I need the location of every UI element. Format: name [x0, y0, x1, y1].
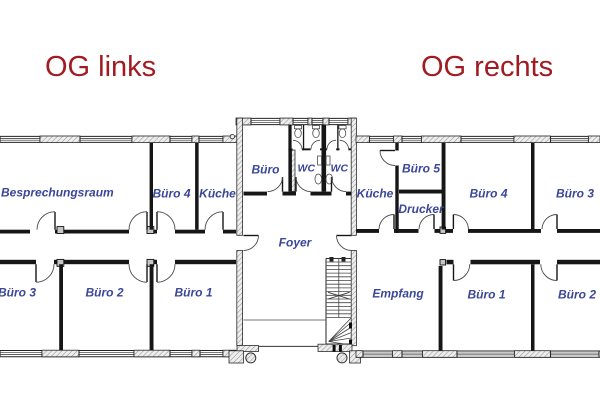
svg-text:Büro 2: Büro 2: [85, 286, 123, 300]
svg-text:Büro 1: Büro 1: [467, 288, 505, 302]
svg-text:Büro 5: Büro 5: [402, 162, 440, 176]
svg-text:Büro 1: Büro 1: [174, 286, 212, 300]
svg-text:Drucker: Drucker: [398, 202, 445, 216]
svg-text:Büro 4: Büro 4: [469, 187, 507, 201]
svg-text:OG links: OG links: [45, 51, 156, 83]
svg-text:OG rechts: OG rechts: [421, 51, 553, 83]
svg-text:Besprechungsraum: Besprechungsraum: [1, 186, 114, 200]
svg-text:Küche: Küche: [357, 187, 394, 201]
svg-text:Büro 4: Büro 4: [152, 187, 190, 201]
svg-text:Büro 2: Büro 2: [558, 288, 596, 302]
svg-text:Büro: Büro: [252, 163, 280, 177]
svg-text:Küche: Küche: [199, 187, 236, 201]
svg-text:Büro 3: Büro 3: [0, 286, 36, 300]
svg-text:WC: WC: [298, 162, 316, 174]
svg-text:Foyer: Foyer: [279, 236, 313, 250]
svg-text:WC: WC: [331, 162, 349, 174]
svg-text:Empfang: Empfang: [372, 287, 424, 301]
svg-text:Büro 3: Büro 3: [556, 187, 594, 201]
